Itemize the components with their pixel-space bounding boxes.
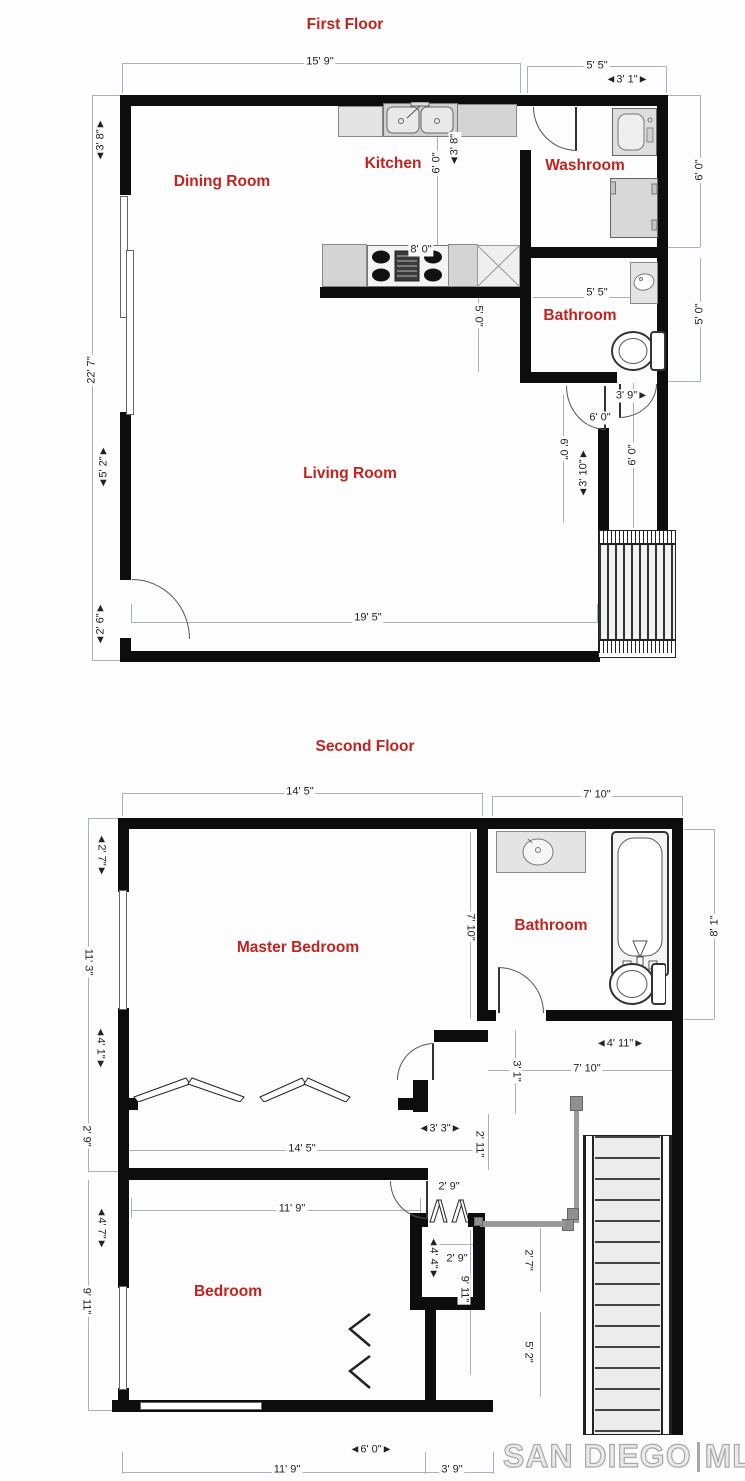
dim-label: 7' 10" (571, 1063, 602, 1076)
first-floor-title: First Floor (307, 16, 384, 34)
dim-label: ◄4' 11"► (594, 1038, 646, 1051)
ff-left-wall-mid (120, 412, 131, 580)
rail-post (474, 1217, 483, 1226)
ff-washroom-bottom-wall (520, 247, 668, 258)
dim-label: 2' 9" (444, 1253, 469, 1266)
watermark-mls: MLS (705, 1438, 745, 1475)
dim-label: 3' 9" (439, 1464, 464, 1477)
stair-hatch (599, 531, 675, 543)
toilet-icon (606, 960, 666, 1008)
dim-label: ◄5' 2"► (98, 443, 111, 490)
sf-mb-door-wall (434, 1030, 488, 1042)
dim-tick (520, 63, 521, 93)
window (140, 1402, 262, 1410)
dim-label: 5' 5" (584, 287, 609, 300)
sf-top-wall (118, 818, 683, 829)
dim-label: 2' 7" (522, 1247, 535, 1272)
dim-line (540, 1228, 541, 1292)
dryer-icon (610, 178, 658, 238)
room-label-kitchen: Kitchen (365, 155, 422, 173)
dim-label: 6' 0" (557, 436, 570, 461)
dim-label: 6' 0" (694, 157, 707, 182)
railing (574, 1111, 579, 1223)
watermark-city: SAN DIEGO (503, 1438, 692, 1475)
dim-label: 3' 1" (510, 1058, 523, 1083)
dim-label: 2' 11" (473, 1129, 486, 1160)
dim-label: ◄4' 7"► (95, 1204, 108, 1251)
ff-washroom-wall (520, 150, 531, 250)
sf-bathroom-door (498, 967, 544, 1013)
dim-label: 8' 0" (408, 244, 433, 257)
stair-stringer (661, 1136, 671, 1434)
dim-label: 7' 10" (464, 911, 477, 942)
dim-tick (88, 1171, 118, 1172)
sf-right-wall (672, 818, 683, 1435)
sf-bathroom-bottom-wall (477, 1010, 496, 1021)
dim-label: ◄3' 10"► (578, 446, 591, 499)
dim-label: 6' 0" (587, 412, 612, 425)
second-floor-title: Second Floor (315, 738, 414, 756)
dim-tick (668, 95, 700, 96)
dim-tick (122, 1452, 123, 1474)
dim-label: 5' 2" (522, 1339, 535, 1364)
room-label-sf-bathroom: Bathroom (514, 917, 587, 935)
dim-tick (666, 66, 667, 93)
dim-label: 14' 5" (284, 786, 315, 799)
ff-right-wall (657, 95, 668, 530)
railing (480, 1221, 564, 1227)
stair-stringer (584, 1136, 594, 1434)
kitchen-counter (338, 106, 383, 137)
ff-bathroom-bottom-wall (520, 372, 617, 383)
watermark-divider (697, 1442, 700, 1472)
ff-hall-wall (598, 428, 609, 530)
ff-kitchen-wall (320, 287, 531, 298)
dim-tick (668, 381, 700, 382)
dim-label: ◄2' 6"► (95, 600, 108, 647)
ff-stairs (598, 530, 676, 658)
dim-line (488, 1114, 489, 1170)
kitchen-counter (448, 244, 478, 287)
room-label-bedroom: Bedroom (194, 1283, 262, 1301)
sf-left-wall (118, 1180, 129, 1288)
sf-divider-wall (118, 1168, 428, 1180)
sf-bedroom-door (390, 1181, 428, 1219)
sf-bathroom-left-wall (477, 829, 488, 1020)
closet-doors-icon (258, 1076, 352, 1102)
dim-label: ◄4' 1"► (94, 1024, 107, 1071)
mls-watermark: SAN DIEGO MLS (503, 1438, 745, 1475)
washer-icon (612, 108, 657, 156)
room-label-master: Master Bedroom (237, 939, 359, 957)
sink-icon (632, 270, 658, 294)
stair-treads (595, 1136, 660, 1434)
dim-label: 8' 1" (709, 913, 722, 938)
sf-bathroom-bottom-wall (546, 1010, 683, 1021)
ff-entry-door (132, 579, 190, 639)
dim-label: 5' 5" (584, 60, 609, 73)
sf-closet-wall-stub (398, 1098, 428, 1110)
dim-label: ◄4' 4"► (427, 1234, 440, 1281)
dim-tick (493, 1452, 494, 1474)
dim-label: ◄3' 1"► (603, 74, 650, 87)
dim-label: 19' 5" (352, 612, 383, 625)
dim-tick (88, 818, 118, 819)
dim-tick (92, 95, 120, 96)
dim-tick (131, 1198, 132, 1218)
window (119, 1286, 127, 1390)
dishwasher-icon (477, 245, 520, 287)
room-label-washroom: Washroom (545, 157, 625, 175)
bathtub-icon (611, 831, 669, 977)
dim-label: ◄3' 8"► (95, 116, 108, 163)
dim-tick (92, 660, 120, 661)
dim-line (540, 1312, 541, 1397)
dim-label: ◄3' 8" (449, 132, 462, 168)
rail-post (570, 1096, 583, 1111)
dim-label: 5' 0" (472, 303, 485, 328)
floor-plan: First Floor (0, 0, 745, 1481)
closet-doors-icon (344, 1312, 374, 1350)
dim-label: 6' 0" (627, 442, 640, 467)
dim-line (88, 818, 89, 1172)
dim-tick (122, 63, 123, 93)
dim-label: 9' 11" (458, 1274, 471, 1305)
closet-doors-icon (428, 1196, 468, 1224)
sf-closet-bottom-wall (410, 1297, 485, 1310)
dim-tick (684, 829, 714, 830)
dim-tick (122, 793, 123, 816)
dim-label: ◄3' 3"► (416, 1123, 463, 1136)
sink-icon (518, 835, 558, 869)
window (126, 250, 134, 415)
dim-tick (492, 796, 493, 816)
room-label-bathroom: Bathroom (543, 307, 616, 325)
sf-closet-right-wall (473, 1213, 485, 1310)
dim-tick (425, 1452, 426, 1474)
dim-label: 22' 7" (86, 354, 99, 385)
dim-label: 7' 10" (581, 789, 612, 802)
sf-left-wall (118, 1008, 129, 1174)
dim-label: ◄2' 7"► (95, 831, 108, 878)
stair-treads (599, 543, 675, 641)
dim-tick (682, 796, 683, 816)
room-label-dining: Dining Room (174, 173, 270, 191)
kitchen-counter (322, 244, 367, 287)
ff-bathroom-left-wall (520, 258, 531, 383)
dim-label: ◄6' 0"► (347, 1444, 394, 1457)
sf-left-wall (118, 818, 129, 892)
sf-master-door (397, 1043, 434, 1080)
dim-label: 15' 9" (304, 56, 335, 69)
dim-tick (668, 247, 700, 248)
dim-label: 3' 9"► (614, 390, 650, 403)
dim-label: 9' 11" (80, 1286, 93, 1317)
dim-label: 2' 9" (436, 1181, 461, 1194)
dim-label: 11' 9" (272, 1464, 303, 1477)
ff-washroom-door (533, 107, 577, 151)
room-label-living: Living Room (303, 465, 397, 483)
ff-bottom-wall (120, 651, 600, 662)
closet-doors-icon (344, 1354, 374, 1392)
sf-stairs (583, 1135, 672, 1435)
dim-tick (482, 793, 483, 816)
closet-doors-icon (132, 1076, 246, 1102)
dim-label: 11' 9" (277, 1203, 308, 1216)
stair-hatch (599, 641, 675, 653)
ff-left-wall-upper (120, 95, 131, 195)
dim-tick (527, 66, 528, 93)
dim-label: 5' 0" (694, 301, 707, 326)
dim-label: 11' 3" (82, 947, 95, 978)
window (119, 890, 127, 1010)
dim-label: 6' 0" (431, 150, 444, 175)
dim-label: 2' 9" (80, 1123, 93, 1148)
dim-label: 14' 5" (286, 1143, 317, 1156)
sf-bedroom-right-wall (425, 1297, 436, 1412)
kitchen-sink-icon (383, 102, 458, 138)
kitchen-counter (457, 104, 517, 137)
dim-line (533, 297, 633, 298)
toilet-icon (608, 329, 666, 373)
dim-tick (684, 1019, 714, 1020)
